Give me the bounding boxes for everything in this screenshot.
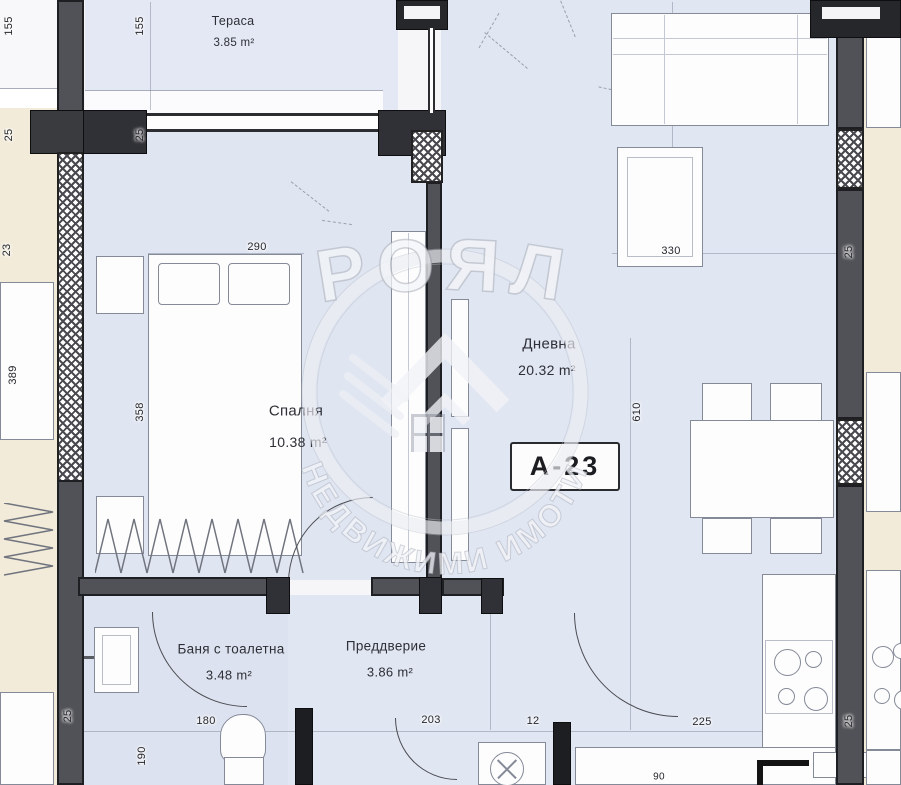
toilet-tank: [224, 757, 264, 785]
chair: [702, 383, 752, 421]
dining-table: [690, 420, 834, 518]
dimension-label: 25: [62, 710, 74, 723]
neighbor-furniture: [0, 692, 54, 785]
neighbor-burner: [874, 688, 890, 704]
wall: [426, 182, 442, 579]
room-area-hallway: 3.86 m²: [367, 665, 413, 680]
wardrobe-divider: [408, 233, 409, 561]
coffee-table-inner: [627, 157, 693, 257]
window-hatch: [57, 152, 84, 482]
wall: [57, 0, 84, 114]
wall-block: [266, 577, 290, 614]
dimension-label: 155: [3, 16, 15, 35]
projection-line: [150, 2, 151, 110]
dimension-label: 90: [653, 772, 665, 783]
window-hatch: [836, 129, 864, 189]
pillow: [228, 263, 290, 305]
neighbor-radiator: [2, 503, 55, 578]
wall: [836, 189, 864, 419]
neighbor-sill: [0, 88, 57, 109]
cooktop-burner: [805, 651, 822, 668]
room-label-terrace: Тераса: [212, 14, 255, 28]
dimension-label: 290: [247, 241, 266, 253]
window-hatch: [411, 130, 443, 183]
sink-basin: [102, 635, 131, 685]
room-area-living: 20.32 m²: [518, 362, 576, 378]
room-label-living: Дневна: [522, 336, 575, 353]
chair: [770, 518, 822, 554]
dimension-label: 180: [196, 715, 215, 727]
left-neighbor-unit: [0, 108, 57, 785]
wall: [836, 36, 864, 129]
dimension-label: 25: [3, 129, 15, 142]
tv-shelf: [451, 428, 469, 561]
dimension-label: 25: [843, 246, 855, 259]
radiator: [95, 517, 307, 575]
dimension-label: 389: [7, 365, 19, 384]
apartment-id-badge: А-23: [510, 442, 620, 491]
wall-stub: [295, 708, 313, 785]
projection-line: [490, 598, 491, 730]
room-area-bathroom: 3.48 m²: [206, 668, 252, 683]
dimension-label: 25: [843, 715, 855, 728]
dimension-label: 25: [134, 129, 146, 142]
cooktop-burner: [804, 687, 828, 711]
neighbor-furniture: [0, 282, 54, 440]
neighbor-furniture: [866, 372, 901, 512]
dimension-label: 225: [692, 716, 711, 728]
wall-stub: [553, 722, 571, 785]
room-label-hallway: Преддверие: [346, 639, 426, 654]
dimension-label: 358: [134, 402, 146, 421]
floor-plan: 155 155 25 25 23 389 358 290 330 610 25 …: [0, 0, 901, 785]
room-area-bedroom: 10.38 m²: [269, 434, 327, 450]
wall-block: [481, 578, 503, 614]
neighbor-burner: [872, 646, 894, 668]
sofa-armrest-line: [797, 15, 798, 124]
cooktop-burner: [778, 688, 795, 705]
dimension-label: 330: [661, 245, 680, 257]
washing-machine-door: [490, 752, 524, 785]
sofa-cushion-line: [613, 54, 827, 55]
wall-slot: [822, 7, 880, 19]
dimension-label: 155: [134, 16, 146, 35]
dimension-label: 23: [1, 244, 13, 257]
dimension-label: 203: [421, 714, 440, 726]
nightstand: [96, 256, 144, 314]
chair: [702, 518, 752, 554]
room-label-bedroom: Спалня: [269, 403, 323, 420]
counter-corner: [757, 760, 809, 785]
neighbor-furniture: [866, 750, 901, 785]
wall: [78, 577, 290, 596]
sofa-cushion-line: [613, 38, 827, 39]
sofa-armrest-line: [664, 15, 665, 124]
wall-block: [810, 0, 901, 38]
window-hatch: [836, 419, 864, 485]
room-label-bathroom: Баня с тоалетна: [177, 642, 284, 657]
tv-shelf: [451, 299, 469, 417]
dimension-label: 190: [136, 746, 148, 765]
dimension-label: 12: [527, 715, 540, 727]
wall-slot: [404, 6, 440, 19]
wall: [57, 480, 84, 785]
wall-block: [419, 577, 442, 614]
chair: [770, 383, 822, 421]
pillow: [158, 263, 220, 305]
room-area-terrace: 3.85 m²: [213, 37, 254, 49]
cooktop-burner: [774, 649, 801, 676]
dimension-line-bottom: [83, 731, 836, 732]
dimension-label: 610: [631, 402, 643, 421]
wall: [836, 485, 864, 785]
terrace-glass-side: [428, 28, 435, 113]
